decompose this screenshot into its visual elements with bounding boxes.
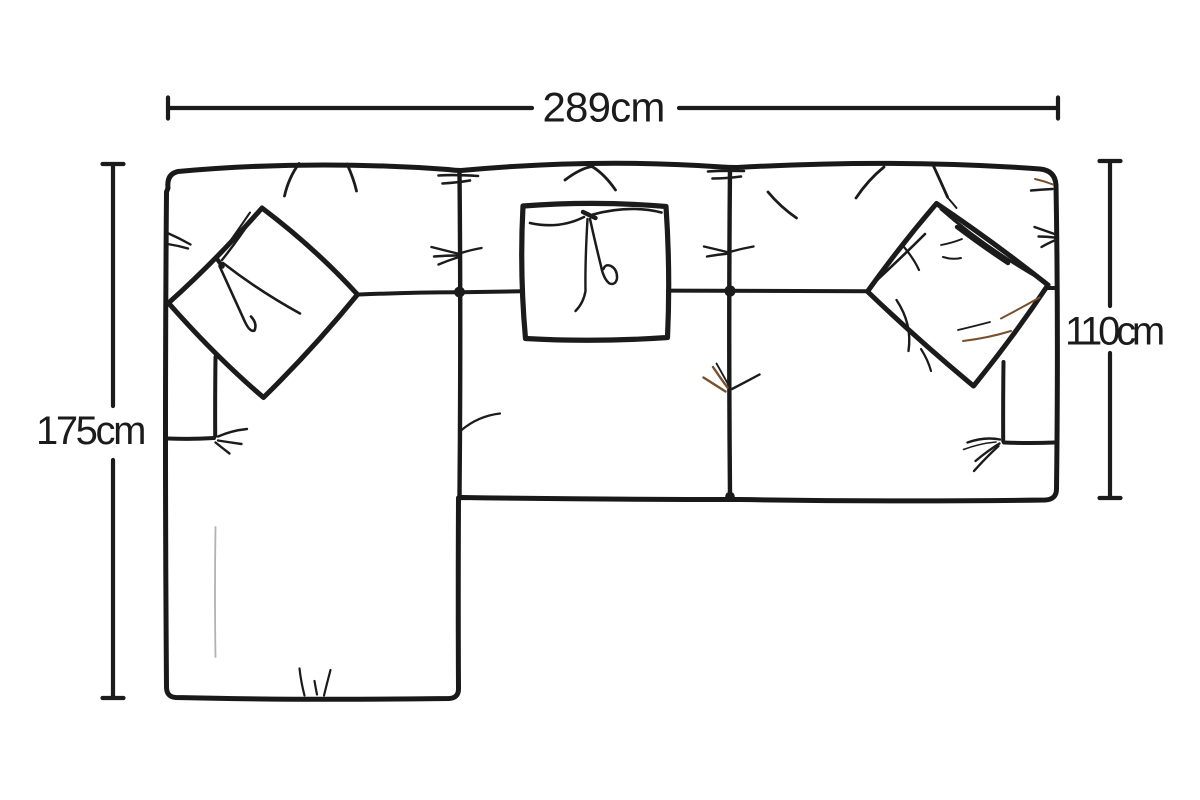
svg-text:110cm: 110cm [1065, 310, 1163, 354]
svg-text:289cm: 289cm [542, 84, 664, 131]
svg-text:175cm: 175cm [36, 409, 144, 453]
